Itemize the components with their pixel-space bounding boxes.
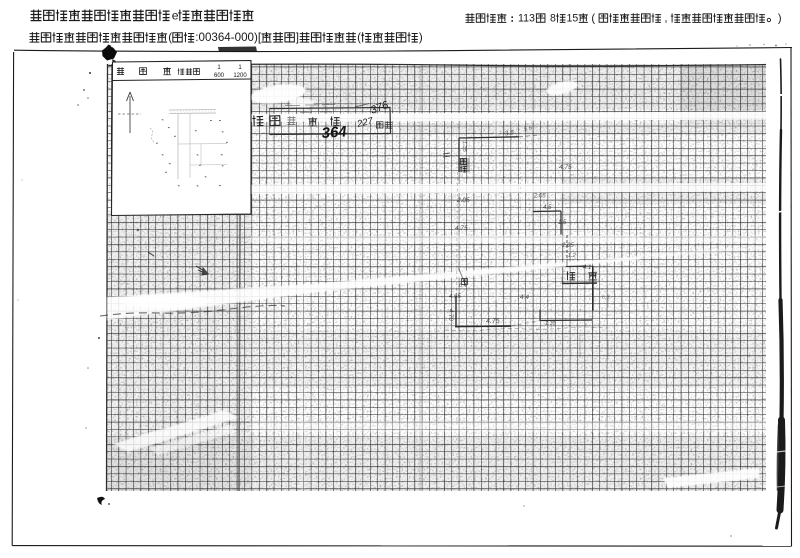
- svg-text:4.75: 4.75: [559, 164, 572, 171]
- svg-text:15: 15: [567, 13, 579, 25]
- svg-text:2.05: 2.05: [561, 243, 574, 249]
- svg-text:1200: 1200: [233, 73, 247, 79]
- svg-text:): ): [778, 13, 782, 25]
- svg-text:4.75: 4.75: [486, 318, 500, 325]
- svg-text:1.2: 1.2: [568, 253, 576, 259]
- svg-text:1.5: 1.5: [558, 220, 567, 226]
- svg-text:2.05: 2.05: [533, 194, 546, 200]
- svg-text:4.65: 4.65: [449, 294, 461, 300]
- svg-text:4.5: 4.5: [543, 205, 552, 211]
- svg-text:): ): [419, 31, 423, 44]
- svg-text:(: (: [591, 13, 595, 25]
- svg-text:1.35: 1.35: [545, 321, 557, 327]
- svg-text:6.4: 6.4: [459, 283, 467, 289]
- svg-text:4.4: 4.4: [520, 294, 529, 301]
- svg-text:3.6: 3.6: [504, 129, 514, 137]
- svg-text::00364-000)[: :00364-000)[: [195, 31, 262, 44]
- svg-text:364: 364: [321, 123, 348, 142]
- svg-text:,: ,: [665, 13, 668, 25]
- svg-text:1.35: 1.35: [461, 141, 467, 153]
- svg-text:(: (: [168, 31, 172, 44]
- svg-text:600: 600: [214, 73, 225, 79]
- svg-text:6.3: 6.3: [602, 295, 611, 301]
- svg-text:e: e: [172, 9, 179, 23]
- svg-text:2.05: 2.05: [456, 197, 470, 204]
- svg-text:(: (: [357, 31, 361, 44]
- svg-text:4.70: 4.70: [447, 309, 453, 321]
- svg-text:4.1: 4.1: [583, 265, 591, 271]
- svg-text:4.75: 4.75: [455, 225, 468, 232]
- svg-text:113: 113: [518, 13, 535, 25]
- svg-text:8: 8: [550, 13, 556, 25]
- svg-text:]: ]: [296, 31, 299, 44]
